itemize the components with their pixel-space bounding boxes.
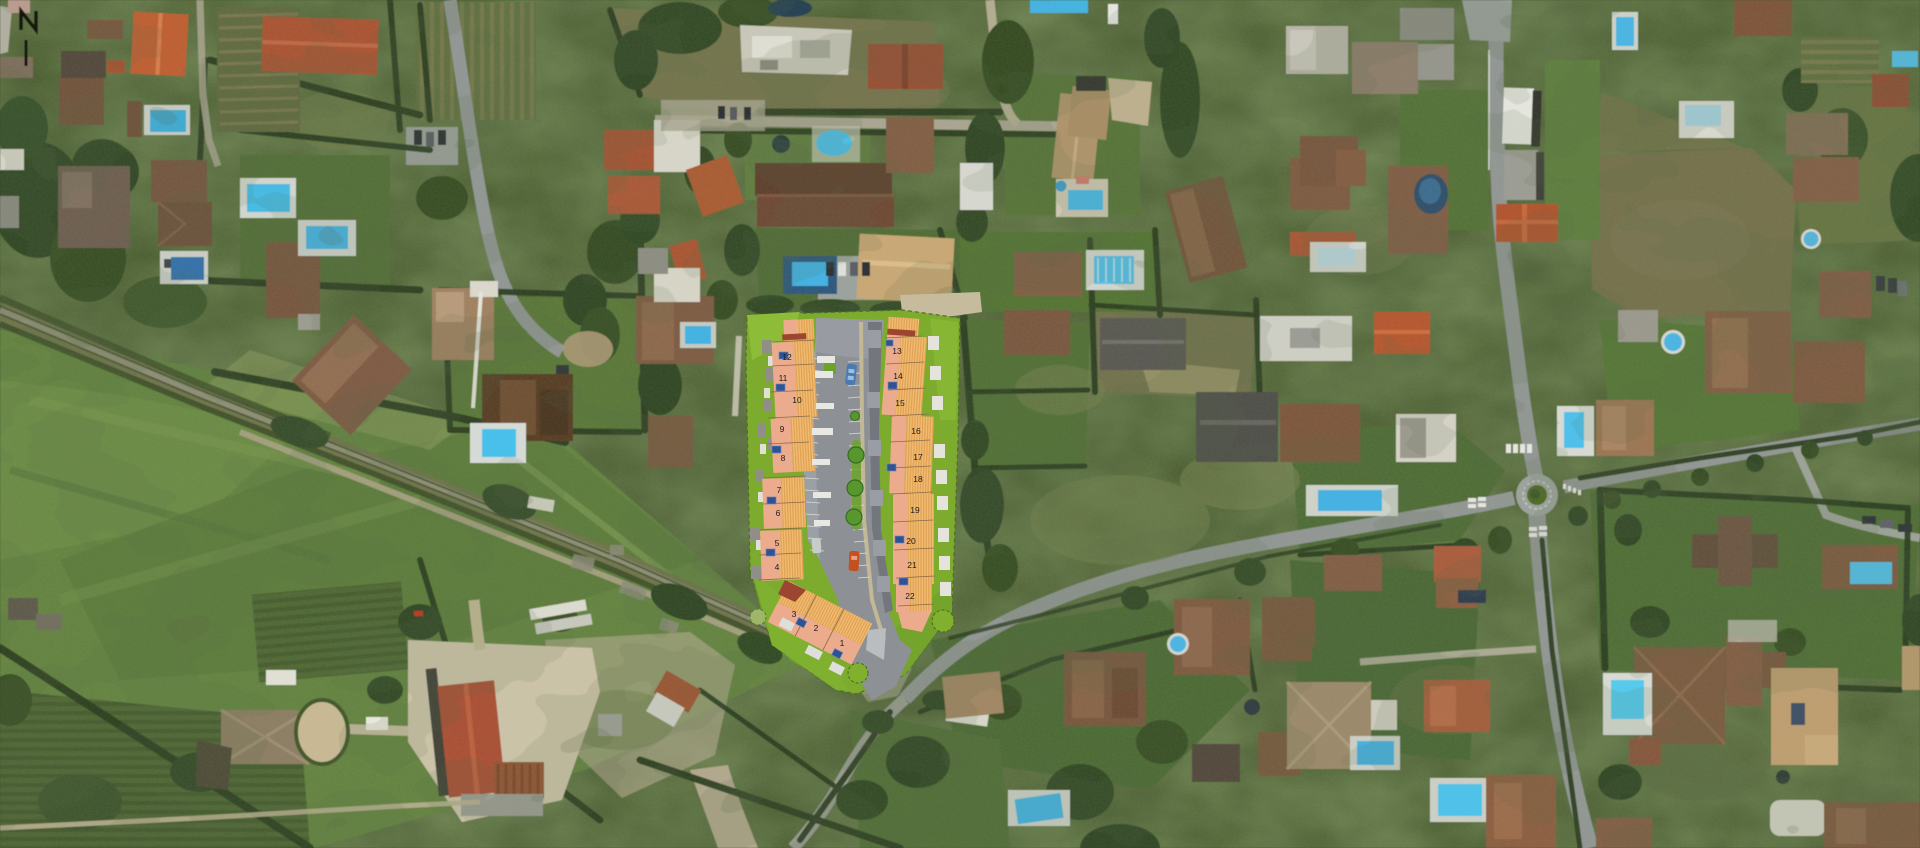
svg-text:4: 4	[775, 562, 780, 572]
svg-text:13: 13	[892, 346, 902, 356]
svg-text:1: 1	[840, 638, 845, 648]
svg-text:2: 2	[814, 623, 819, 633]
svg-text:14: 14	[893, 371, 903, 381]
svg-text:18: 18	[913, 474, 923, 484]
svg-text:12: 12	[782, 352, 792, 362]
svg-text:17: 17	[913, 452, 923, 462]
svg-text:7: 7	[777, 485, 782, 495]
svg-text:11: 11	[779, 373, 788, 383]
svg-text:5: 5	[775, 538, 780, 548]
svg-text:21: 21	[907, 560, 917, 570]
svg-text:22: 22	[905, 591, 915, 601]
svg-text:15: 15	[895, 398, 905, 408]
svg-text:8: 8	[781, 453, 786, 463]
svg-text:9: 9	[780, 424, 785, 434]
svg-text:10: 10	[792, 395, 802, 405]
svg-text:19: 19	[910, 505, 920, 515]
svg-text:16: 16	[911, 426, 921, 436]
svg-text:6: 6	[776, 508, 781, 518]
svg-text:3: 3	[792, 609, 797, 619]
svg-text:20: 20	[906, 536, 916, 546]
